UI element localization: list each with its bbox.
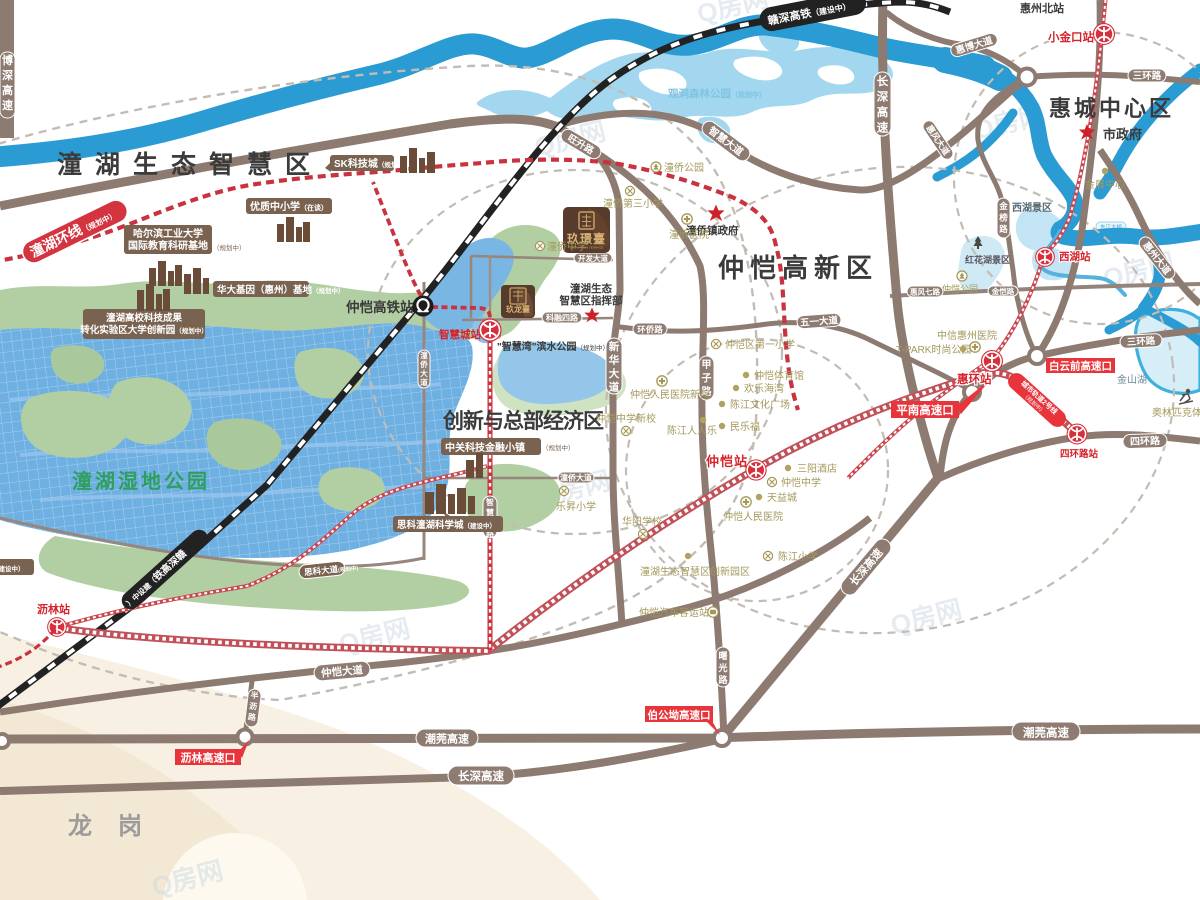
svg-text:潼湖生态智慧区创新园区: 潼湖生态智慧区创新园区 <box>640 565 750 578</box>
svg-text:三环路: 三环路 <box>1133 70 1162 82</box>
svg-text:沥林高速口: 沥林高速口 <box>181 751 236 765</box>
svg-text:西湖景区: 西湖景区 <box>1012 201 1052 214</box>
svg-text:三环路: 三环路 <box>1126 335 1156 349</box>
svg-text:环侨路: 环侨路 <box>637 325 663 335</box>
svg-text:仲恺高铁站: 仲恺高铁站 <box>346 299 414 315</box>
svg-text:惠州北站: 惠州北站 <box>1020 1 1064 15</box>
svg-text:白云前高速口: 白云前高速口 <box>1049 360 1112 373</box>
svg-text:仲恺汽车客运站: 仲恺汽车客运站 <box>639 606 709 619</box>
svg-text:开发大道: 开发大道 <box>578 253 608 263</box>
svg-text:华阳学校: 华阳学校 <box>622 515 662 528</box>
svg-text:仲恺中学: 仲恺中学 <box>781 476 821 489</box>
svg-text:陈江文化广场: 陈江文化广场 <box>730 398 790 411</box>
svg-text:（规划中）: （规划中） <box>542 443 575 452</box>
svg-text:陈江小学: 陈江小学 <box>778 550 818 563</box>
svg-text:奥林匹克体育场: 奥林匹克体育场 <box>1152 406 1200 419</box>
svg-text:长深高速: 长深高速 <box>458 769 504 783</box>
svg-text:伯公坳高速口: 伯公坳高速口 <box>648 709 711 722</box>
svg-text:潼湖高校科技成果: 潼湖高校科技成果 <box>106 312 183 324</box>
svg-text:天益城: 天益城 <box>767 491 797 504</box>
svg-text:潼侨大道: 潼侨大道 <box>560 473 592 483</box>
svg-text:潼湖湿地公园: 潼湖湿地公园 <box>72 469 210 493</box>
svg-text:（规划中）: （规划中） <box>213 243 246 252</box>
svg-text:潼侨中学: 潼侨中学 <box>547 240 587 253</box>
svg-text:创新与总部经济区: 创新与总部经济区 <box>442 409 604 433</box>
svg-text:西湖站: 西湖站 <box>1059 250 1091 263</box>
svg-text:陈江人人乐: 陈江人人乐 <box>667 424 717 437</box>
svg-text:金展中心: 金展中心 <box>1085 178 1125 191</box>
svg-text:民乐福: 民乐福 <box>730 420 760 433</box>
svg-text:金恺路: 金恺路 <box>991 286 1015 296</box>
svg-text:惠城中心区: 惠城中心区 <box>1049 96 1174 121</box>
svg-text:四环路: 四环路 <box>1130 434 1161 448</box>
svg-text:玖龙臺: 玖龙臺 <box>506 304 530 314</box>
svg-text:仲恺体育馆: 仲恺体育馆 <box>754 369 804 382</box>
svg-text:沥林站: 沥林站 <box>37 602 70 616</box>
svg-text:中关科技金融小镇: 中关科技金融小镇 <box>445 441 525 454</box>
svg-text:潼侨医院: 潼侨医院 <box>669 228 709 241</box>
svg-text:潼侨公园: 潼侨公园 <box>664 161 704 174</box>
svg-text:仲恺高新区: 仲恺高新区 <box>718 253 878 283</box>
svg-text:潼湖生态智慧区: 潼湖生态智慧区 <box>57 150 323 179</box>
svg-text:中信惠州医院: 中信惠州医院 <box>937 329 997 342</box>
svg-text:潮莞高速: 潮莞高速 <box>425 732 469 746</box>
svg-text:金山湖: 金山湖 <box>1117 373 1147 386</box>
svg-text:潮莞高速: 潮莞高速 <box>1023 726 1069 740</box>
svg-text:仲恺站: 仲恺站 <box>706 454 748 469</box>
svg-text:曙光路: 曙光路 <box>717 651 728 685</box>
svg-text:四环路站: 四环路站 <box>1060 448 1099 460</box>
svg-text:小金口站: 小金口站 <box>1047 30 1094 44</box>
svg-text:仲恺中学新校: 仲恺中学新校 <box>596 412 656 425</box>
svg-text:哈尔滨工业大学: 哈尔滨工业大学 <box>133 227 203 240</box>
svg-text:科融四路: 科融四路 <box>546 313 579 323</box>
svg-text:金榜路: 金榜路 <box>998 201 1008 234</box>
svg-text:智慧区指挥部: 智慧区指挥部 <box>559 294 623 307</box>
svg-text:三阳酒店: 三阳酒店 <box>797 462 837 475</box>
svg-text:红花湖景区: 红花湖景区 <box>965 254 1010 265</box>
svg-text:平南高速口: 平南高速口 <box>896 403 954 417</box>
svg-text:惠风七路: 惠风七路 <box>910 287 940 297</box>
svg-text:乐昇小学: 乐昇小学 <box>556 500 596 513</box>
svg-text:潼侨大道: 潼侨大道 <box>419 350 428 387</box>
svg-text:仲恺人民医院新院: 仲恺人民医院新院 <box>630 388 710 401</box>
svg-text:潼侨第三小学: 潼侨第三小学 <box>603 197 663 210</box>
svg-text:仲恺人民医院: 仲恺人民医院 <box>723 510 783 523</box>
svg-text:龙岗: 龙岗 <box>68 813 168 840</box>
svg-text:潼湖生态: 潼湖生态 <box>570 282 612 295</box>
svg-text:仲恺公园: 仲恺公园 <box>942 283 978 294</box>
svg-text:欢乐海湾: 欢乐海湾 <box>744 382 784 395</box>
svg-text:惠环站: 惠环站 <box>957 372 992 386</box>
svg-text:国际教育科研基地: 国际教育科研基地 <box>128 239 208 252</box>
svg-text:仲恺区第一小学: 仲恺区第一小学 <box>725 338 795 351</box>
svg-text:市政府: 市政府 <box>1103 127 1142 142</box>
